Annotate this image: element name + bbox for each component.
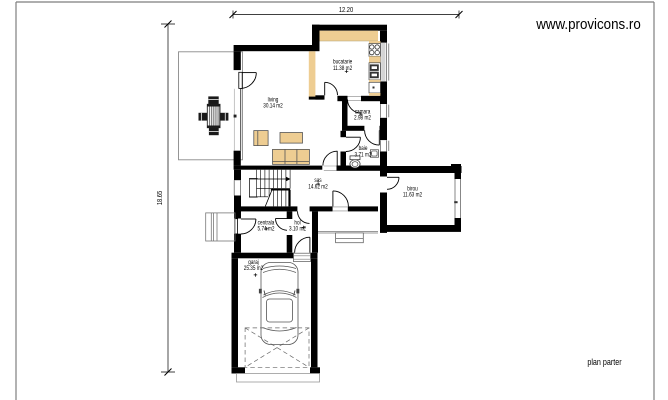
svg-text:18.65: 18.65	[157, 190, 165, 205]
svg-text:2.98 m2: 2.98 m2	[354, 115, 371, 122]
svg-text:30.14 m2: 30.14 m2	[263, 103, 283, 110]
svg-text:12.20: 12.20	[339, 7, 354, 15]
svg-text:plan parter: plan parter	[587, 357, 622, 367]
svg-text:3.71 m2: 3.71 m2	[355, 152, 372, 159]
svg-text:www.provicons.ro: www.provicons.ro	[535, 16, 641, 33]
svg-text:5.74 m2: 5.74 m2	[258, 226, 275, 233]
svg-text:11.38 m2: 11.38 m2	[333, 66, 352, 73]
svg-text:25.35 m2: 25.35 m2	[244, 266, 264, 273]
svg-text:11.63 m2: 11.63 m2	[403, 192, 422, 199]
